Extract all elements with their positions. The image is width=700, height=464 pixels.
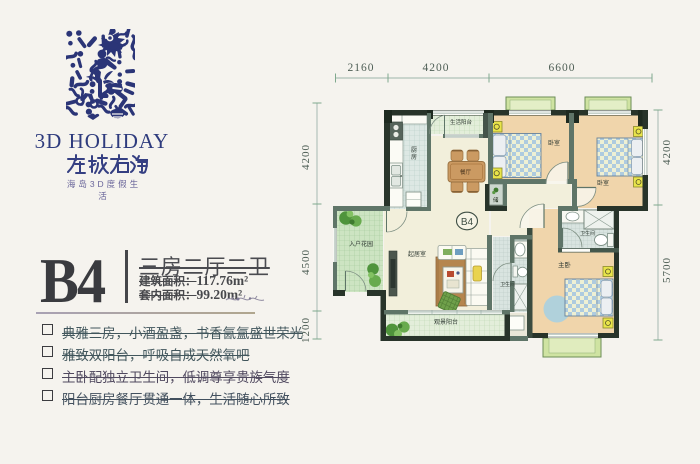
svg-text:储: 储 <box>493 196 499 204</box>
svg-text:6600: 6600 <box>549 62 576 74</box>
svg-text:4200: 4200 <box>661 139 673 165</box>
svg-text:房: 房 <box>411 153 417 161</box>
svg-text:起居室: 起居室 <box>408 250 426 258</box>
svg-text:2160: 2160 <box>348 62 375 74</box>
svg-text:卧室: 卧室 <box>548 139 560 147</box>
svg-text:餐厅: 餐厅 <box>460 168 472 176</box>
svg-text:入户花园: 入户花园 <box>349 240 373 248</box>
svg-text:厨: 厨 <box>411 147 417 154</box>
svg-text:4500: 4500 <box>300 249 312 275</box>
svg-text:卫生间: 卫生间 <box>500 281 515 288</box>
svg-text:卫生间: 卫生间 <box>580 230 595 237</box>
svg-text:4200: 4200 <box>423 62 450 74</box>
svg-text:B4: B4 <box>461 217 474 228</box>
svg-text:生活阳台: 生活阳台 <box>450 118 473 126</box>
svg-text:5700: 5700 <box>661 257 673 283</box>
svg-text:观景阳台: 观景阳台 <box>434 318 458 326</box>
svg-text:1200: 1200 <box>300 317 312 343</box>
svg-text:卧室: 卧室 <box>597 179 609 187</box>
svg-text:主卧: 主卧 <box>558 260 572 269</box>
svg-text:4200: 4200 <box>300 144 312 170</box>
